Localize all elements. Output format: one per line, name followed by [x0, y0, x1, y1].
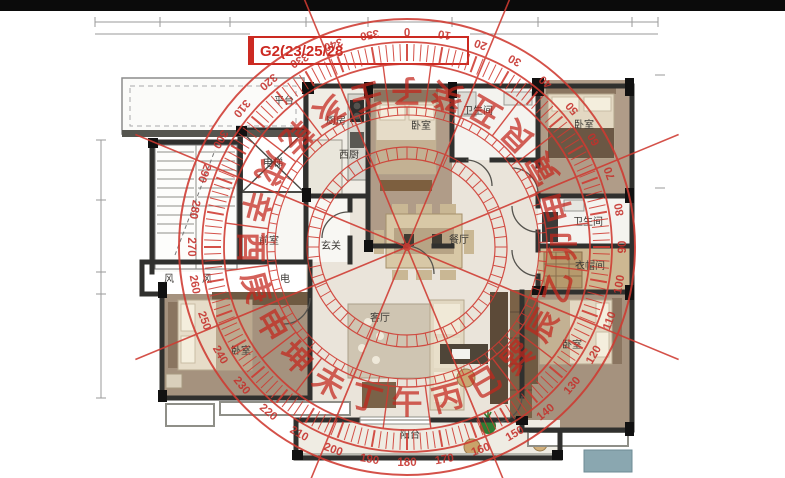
room-label-bedroom-tr: 卧室: [574, 118, 594, 131]
room-label-vent1: 风: [164, 273, 174, 285]
compass-degree-label: 80: [613, 202, 627, 217]
compass-center: [403, 243, 411, 251]
room-label-west-kitchen: 西厨: [339, 149, 359, 161]
compass-degree-label: 260: [187, 274, 202, 295]
floorplan-with-luopan: G2(23/25/28 平台厨房西厨电梯卧室卫生间卧室卫生间衣帽间前室玄关餐厅风…: [0, 0, 785, 478]
compass-mountain-label: 子: [392, 73, 423, 108]
room-label-foyer: 玄关: [321, 239, 341, 252]
compass-degree-label: 170: [434, 452, 455, 467]
compass-degree-label: 270: [185, 237, 197, 256]
compass-degree-label: 190: [359, 452, 380, 467]
room-label-dining: 餐厅: [449, 233, 469, 246]
compass-degree-label: 30: [506, 52, 523, 69]
compass-mountain-label: 午: [392, 386, 423, 421]
compass-mountain-label: 卯: [546, 232, 581, 263]
compass-degree-label: 350: [359, 27, 380, 42]
room-label-elec: 电: [280, 272, 290, 285]
compass-degree-label: 180: [397, 457, 416, 469]
room-label-bedroom-top: 卧室: [411, 119, 431, 132]
compass-degree-label: 10: [437, 27, 452, 41]
lower-balcony-glass: [584, 450, 632, 472]
compass-degree-label: 20: [473, 36, 489, 52]
compass-degree-label: 0: [404, 25, 410, 37]
compass-degree-label: 90: [617, 241, 629, 254]
screenshot-root: G2(23/25/28 平台厨房西厨电梯卧室卫生间卧室卫生间衣帽间前室玄关餐厅风…: [0, 0, 785, 478]
compass-mountain-label: 酉: [233, 232, 268, 263]
